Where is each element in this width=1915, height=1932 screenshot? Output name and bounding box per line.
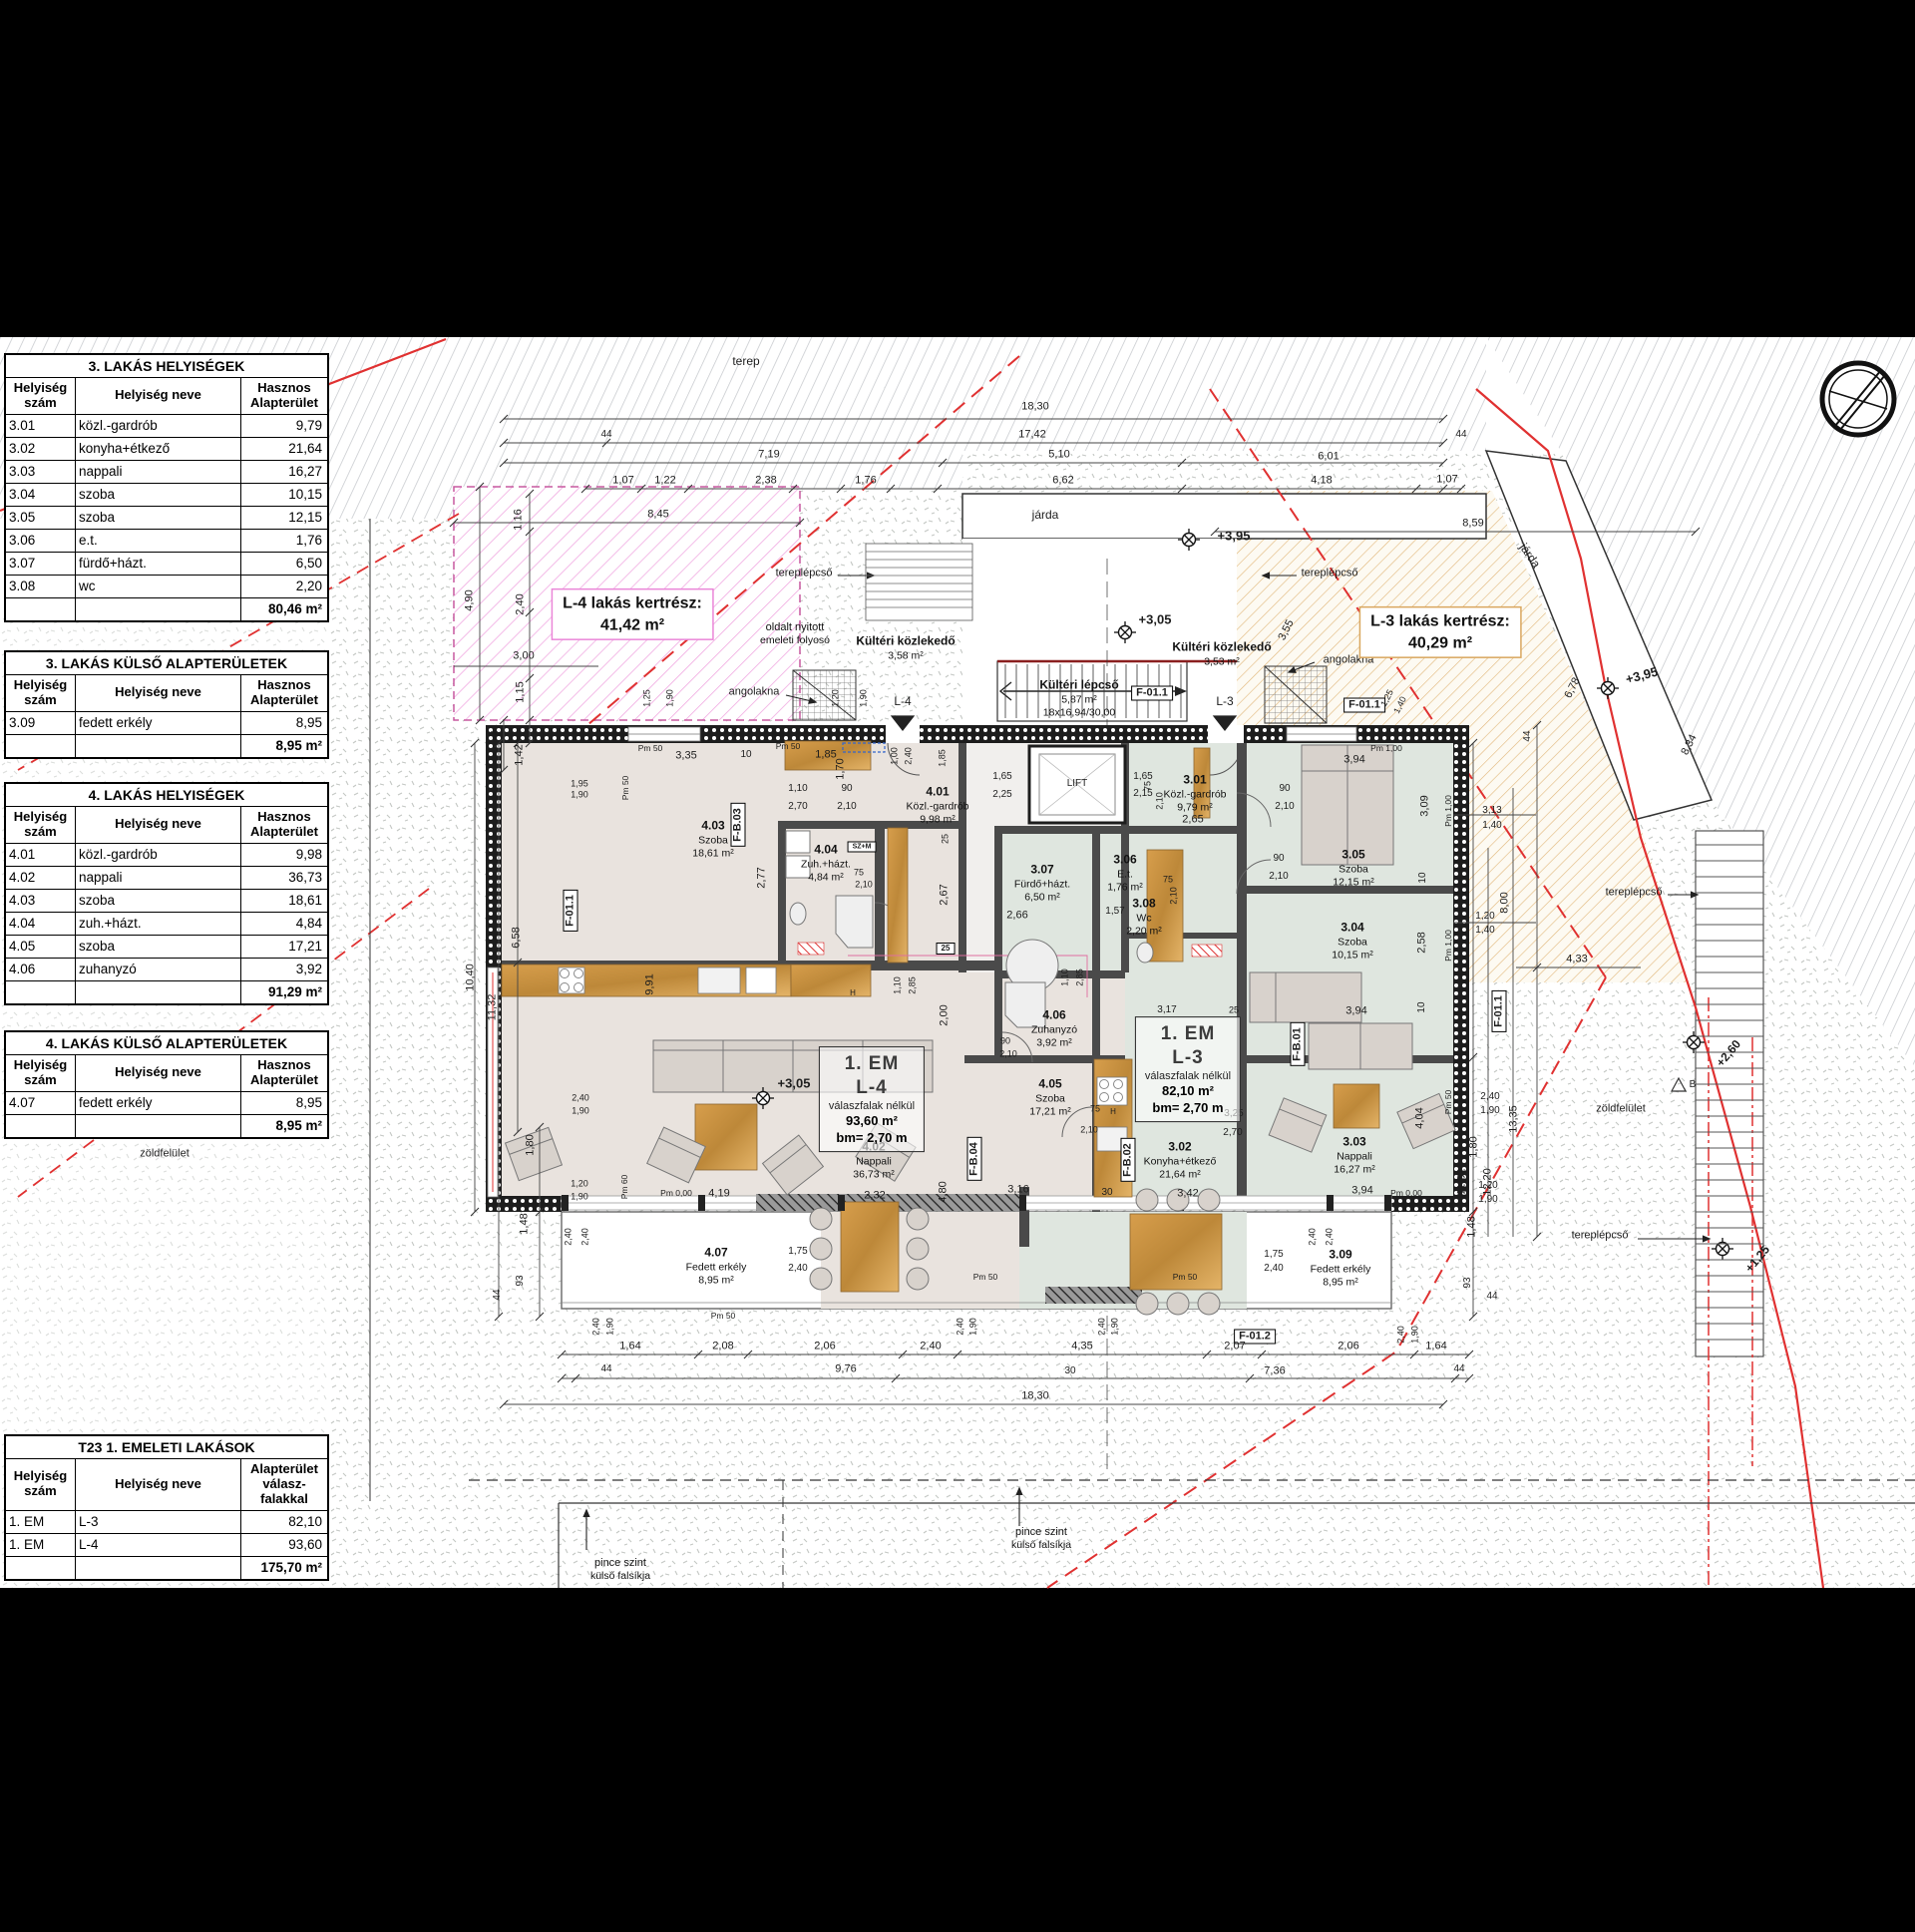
dim-label: Pm 1,00 <box>1444 795 1453 827</box>
dim-label: 2,40 <box>788 1264 807 1274</box>
room-label: 3.05Szoba12,15 m² <box>1333 848 1373 891</box>
table-header-cell: HasznosAlapterület <box>241 378 327 415</box>
room-label: 4.04Zuh.+házt.4,84 m² <box>801 843 851 886</box>
room-label-line: Konyha+étkező <box>1144 1155 1217 1169</box>
dim-label: 4,80 <box>939 1181 950 1202</box>
table-cell: L-3 <box>76 1511 241 1534</box>
room-label-line: 10,15 m² <box>1332 950 1372 964</box>
dim-label: 2,40 <box>1309 1228 1318 1246</box>
table-cell: e.t. <box>76 530 241 553</box>
dim-label: 1,15 <box>516 681 527 702</box>
area-table-4: T23 1. EMELETI LAKÁSOKHelyiségszámHelyis… <box>4 1434 329 1581</box>
table-cell: fedett erkély <box>76 1092 241 1115</box>
dim-label: 9,76 <box>835 1364 856 1375</box>
room-label-line: Kültéri közlekedő <box>856 633 955 649</box>
dim-label: Pm 50 <box>1173 1273 1198 1282</box>
dim-label: 2,85 <box>1076 968 1085 986</box>
table-header-cell: Helyiség neve <box>76 1459 241 1511</box>
table-cell: fedett erkély <box>76 712 241 735</box>
dim-label: 3,94 <box>1345 1006 1366 1017</box>
dim-label: 4,33 <box>1566 955 1587 966</box>
table-title: 4. LAKÁS KÜLSŐ ALAPTERÜLETEK <box>6 1032 327 1055</box>
dim-label: 2,38 <box>755 476 776 487</box>
dim-label: 1,22 <box>654 476 675 487</box>
dim-label: 7,36 <box>1264 1366 1285 1377</box>
room-label-line: 6,50 m² <box>1014 892 1070 906</box>
room-label-line: 16,27 m² <box>1334 1164 1374 1178</box>
dim-label: 2,06 <box>1338 1342 1358 1352</box>
dim-label: 7,19 <box>758 450 779 461</box>
room-label-line: Szoba <box>1029 1092 1070 1106</box>
dim-label: 2,85 <box>909 976 918 994</box>
dim-label: 30 <box>1064 1366 1075 1376</box>
dim-label: Pm 60 <box>620 1175 629 1200</box>
table-row: 3.09fedett erkély8,95 <box>6 712 327 735</box>
dim-label: 3,16 <box>1007 1185 1028 1196</box>
dim-label: 44 <box>1523 730 1533 741</box>
dim-label: 11,32 <box>488 994 499 1021</box>
dim-label: 1,90 <box>572 1107 589 1116</box>
dim-label: 1,85 <box>939 749 948 767</box>
dim-label: 1,76 <box>855 476 876 487</box>
dim-label: 11,32 <box>1457 1169 1468 1196</box>
dim-label: Pm 50 <box>973 1273 998 1282</box>
dim-label: 2,66 <box>1006 911 1027 922</box>
dim-label: 75 <box>1090 1105 1100 1114</box>
table-header-cell: HasznosAlapterület <box>241 675 327 712</box>
building <box>486 725 1469 1309</box>
dim-label: 1,90 <box>1480 1106 1499 1116</box>
table-cell: 82,10 <box>241 1511 327 1534</box>
table-cell <box>76 981 241 1003</box>
table-cell: 17,21 <box>241 936 327 959</box>
dim-label: 10,40 <box>466 964 477 991</box>
area-table-2: 4. LAKÁS HELYISÉGEKHelyiségszámHelyiség … <box>4 782 329 1005</box>
table-row: 4.03szoba18,61 <box>6 890 327 913</box>
room-label-line: 4.05 <box>1029 1077 1070 1093</box>
dim-label: 93 <box>1463 1277 1473 1288</box>
dim-label: 44 <box>600 430 611 440</box>
dim-label: 1,07 <box>612 476 633 487</box>
dim-label: Pm 50 <box>638 744 663 753</box>
dim-label: 3,00 <box>513 651 534 662</box>
table-cell: 93,60 <box>241 1534 327 1557</box>
room-label: 4.05Szoba17,21 m² <box>1029 1077 1070 1120</box>
table-cell: 3.01 <box>6 415 76 438</box>
table-cell: 8,95 m² <box>241 735 327 757</box>
dim-label: 1,80 <box>1469 1136 1480 1157</box>
room-label-line: 21,64 m² <box>1144 1169 1217 1183</box>
reference-tag: 25 <box>937 943 956 955</box>
table-total-row: 91,29 m² <box>6 981 327 1003</box>
table-cell: 91,29 m² <box>241 981 327 1003</box>
room-label-line: Zuh.+házt. <box>801 858 851 872</box>
room-label-line: 1,76 m² <box>1107 882 1143 896</box>
dim-label: 4,35 <box>1071 1342 1092 1352</box>
room-label: pince szintkülső falsíkja <box>590 1556 650 1584</box>
table-total-row: 8,95 m² <box>6 735 327 757</box>
table-row: 4.04zuh.+házt.4,84 <box>6 913 327 936</box>
dim-label: 2,40 <box>592 1318 601 1336</box>
dim-label: 10 <box>740 750 751 760</box>
unit-summary-box: 1. EML-4válaszfalak nélkül93,60 m²bm= 2,… <box>819 1046 925 1152</box>
table-cell: közl.-gardrób <box>76 415 241 438</box>
room-label: 4.01Közl.-gardrób9,98 m² <box>906 785 968 828</box>
table-total-row: 80,46 m² <box>6 598 327 620</box>
dim-label: járda <box>1032 509 1059 521</box>
dim-label: 1,90 <box>606 1318 615 1336</box>
room-label-line: 18x16,94/30,00 <box>1039 707 1118 721</box>
dim-label: angolakna <box>729 687 780 698</box>
table-title: T23 1. EMELETI LAKÁSOK <box>6 1436 327 1459</box>
dim-label: 4,18 <box>1311 476 1332 487</box>
dim-label: 2,10 <box>1080 1126 1098 1135</box>
dim-label: 2,10 <box>837 802 856 812</box>
dim-label: 3,17 <box>1157 1005 1176 1015</box>
dim-label: 2,10 <box>1269 872 1288 882</box>
dim-label: 44 <box>1455 430 1466 440</box>
table-header-cell: Helyiségszám <box>6 1459 76 1511</box>
table-title: 4. LAKÁS HELYISÉGEK <box>6 784 327 807</box>
dim-label: 90 <box>1279 784 1290 794</box>
table-row: 3.08wc2,20 <box>6 576 327 598</box>
room-label-line: 3.08 <box>1126 897 1162 913</box>
dim-label: 2,77 <box>757 867 768 888</box>
room-label-line: Nappali <box>853 1155 894 1169</box>
room-label-line: Wc <box>1126 912 1162 926</box>
table-cell <box>6 598 76 620</box>
table-cell: szoba <box>76 890 241 913</box>
room-label-line: 3.03 <box>1334 1135 1374 1151</box>
table-cell: 3.04 <box>6 484 76 507</box>
dim-label: 2,67 <box>940 884 951 905</box>
table-cell: szoba <box>76 507 241 530</box>
dim-label: 2,40 <box>516 593 527 614</box>
dim-label: 1,75 <box>1264 1250 1283 1260</box>
table-row: 3.06e.t.1,76 <box>6 530 327 553</box>
room-label: 4.06Zuhanyzó3,92 m² <box>1031 1008 1077 1051</box>
dim-label: 93 <box>516 1275 526 1286</box>
table-header-cell: Alapterületválasz-falakkal <box>241 1459 327 1511</box>
room-label-line: 3.09 <box>1311 1248 1371 1264</box>
table-header-cell: Helyiség neve <box>76 1055 241 1092</box>
room-label-line: 3,53 m² <box>1172 655 1271 669</box>
table-cell <box>76 1115 241 1137</box>
dim-label: 8,45 <box>647 510 668 521</box>
room-label-line: emeleti folyosó <box>760 634 830 648</box>
table-header-cell: HasznosAlapterület <box>241 807 327 844</box>
table-cell: 175,70 m² <box>241 1557 327 1579</box>
room-label-line: 4.07 <box>686 1246 747 1262</box>
dim-label: +3,95 <box>1218 530 1251 543</box>
dim-label: 44 <box>1486 1292 1497 1302</box>
room-label: 3.09Fedett erkély8,95 m² <box>1311 1248 1371 1291</box>
table-cell: 16,27 <box>241 461 327 484</box>
dim-label: 18,30 <box>1021 1391 1049 1402</box>
dim-label: H <box>850 989 856 997</box>
dim-label: 5,10 <box>1048 450 1069 461</box>
room-label-line: Fedett erkély <box>1311 1263 1371 1277</box>
unit-summary-box: 1. EML-3válaszfalak nélkül82,10 m²bm= 2,… <box>1135 1016 1241 1122</box>
table-cell: L-4 <box>76 1534 241 1557</box>
dim-label: Pm 50 <box>776 742 801 751</box>
dim-label: 75 <box>1144 781 1153 791</box>
table-cell: 3.05 <box>6 507 76 530</box>
dim-label: 2,10 <box>1275 802 1294 812</box>
dim-label: Pm 1,00 <box>1370 744 1402 753</box>
table-row: 4.05szoba17,21 <box>6 936 327 959</box>
reference-tag: F-B.02 <box>1121 1138 1136 1182</box>
dim-label: 2,40 <box>905 747 914 765</box>
room-label: 3.03Nappali16,27 m² <box>1334 1135 1374 1178</box>
room-label-line: Szoba <box>1332 936 1372 950</box>
area-table-1: 3. LAKÁS KÜLSŐ ALAPTERÜLETEKHelyiségszám… <box>4 650 329 759</box>
table-cell: 4.01 <box>6 844 76 867</box>
dim-label: 44 <box>600 1364 611 1374</box>
dim-label: Pm 0,00 <box>660 1189 692 1198</box>
table-cell: 4.03 <box>6 890 76 913</box>
table-cell: 3.08 <box>6 576 76 598</box>
dim-label: 2,25 <box>992 790 1011 800</box>
table-row: 1. EML-493,60 <box>6 1534 327 1557</box>
table-cell: 4,84 <box>241 913 327 936</box>
dim-label: 1,90 <box>571 1193 588 1202</box>
dim-label: 1,10 <box>788 784 807 794</box>
dim-label: tereplépcső <box>776 569 833 580</box>
dim-label: 2,40 <box>1098 1318 1107 1336</box>
table-cell: nappali <box>76 461 241 484</box>
dim-label: 10 <box>1418 872 1428 883</box>
table-row: 3.01közl.-gardrób9,79 <box>6 415 327 438</box>
room-label-line: 3.02 <box>1144 1140 1217 1156</box>
table-cell: 3.02 <box>6 438 76 461</box>
dim-label: 3,94 <box>1343 755 1364 766</box>
table-cell <box>76 1557 241 1579</box>
dim-label: L-4 <box>894 695 911 707</box>
dim-label: tereplépcső <box>1606 888 1663 899</box>
dim-label: B <box>1690 1080 1697 1090</box>
room-label-line: 3.04 <box>1332 921 1372 937</box>
table-header-cell: HasznosAlapterület <box>241 1055 327 1092</box>
dim-label: Pm 0,00 <box>1390 1189 1422 1198</box>
dim-label: tereplépcső <box>1572 1231 1629 1242</box>
room-label-line: 8,95 m² <box>686 1275 747 1289</box>
table-cell: 36,73 <box>241 867 327 890</box>
dim-label: 4,19 <box>708 1189 729 1200</box>
table-header-cell: Helyiség neve <box>76 675 241 712</box>
dim-label: 2,58 <box>1417 932 1428 953</box>
dim-label: 1,16 <box>514 509 525 530</box>
room-label-line: 5,87 m² <box>1039 693 1118 707</box>
dim-label: 2,65 <box>1182 815 1203 826</box>
table-row: 4.01közl.-gardrób9,98 <box>6 844 327 867</box>
room-label: 4.03Szoba18,61 m² <box>692 819 733 862</box>
terrain-stair-right <box>1696 831 1763 1356</box>
dim-label: 1,90 <box>571 791 588 800</box>
dim-label: 1,20 <box>1478 1181 1497 1191</box>
dim-label: 2,70 <box>1223 1128 1242 1138</box>
dim-label: 4,90 <box>465 589 476 610</box>
room-label: Kültéri közlekedő3,53 m² <box>1172 639 1271 668</box>
dim-label: 1,64 <box>1425 1342 1446 1352</box>
table-cell: 8,95 <box>241 712 327 735</box>
room-label: 3.08Wc2,20 m² <box>1126 897 1162 940</box>
dim-label: 2,40 <box>572 1094 589 1103</box>
table-cell: zuh.+házt. <box>76 913 241 936</box>
dim-label: 6,62 <box>1052 476 1073 487</box>
table-cell: 6,50 <box>241 553 327 576</box>
dim-label: 8,59 <box>1462 519 1483 530</box>
table-cell <box>6 1115 76 1137</box>
dim-label: 2,10 <box>1170 887 1179 905</box>
dim-label: 25 <box>942 834 951 844</box>
room-label: Kültéri közlekedő3,58 m² <box>856 633 955 662</box>
room-label-line: 4.04 <box>801 843 851 859</box>
dim-label: 90 <box>841 784 852 794</box>
dim-label: 2,40 <box>581 1228 590 1246</box>
dim-label: 2,07 <box>1224 1342 1245 1352</box>
room-label-line: 12,15 m² <box>1333 877 1373 891</box>
dim-label: 1,20 <box>571 1180 588 1189</box>
table-cell: 4.05 <box>6 936 76 959</box>
garden-label: L-3 lakás kertrész:40,29 m² <box>1360 607 1520 656</box>
room-label-line: Fedett erkély <box>686 1261 747 1275</box>
dim-label: 1,85 <box>815 750 836 761</box>
room-label-line: 4.03 <box>692 819 733 835</box>
dim-label: 25 <box>1229 1006 1239 1015</box>
room-label-line: 3.06 <box>1107 853 1143 869</box>
table-total-row: 8,95 m² <box>6 1115 327 1137</box>
room-label: oldalt nyitottemeleti folyosó <box>760 620 830 648</box>
room-label-line: 3,58 m² <box>856 649 955 663</box>
table-cell: 9,98 <box>241 844 327 867</box>
table-cell: 10,15 <box>241 484 327 507</box>
room-label-line: pince szint <box>590 1556 650 1570</box>
architectural-floor-plan-sheet: { "sheet": {"bg": "#ffffff", "letterbox"… <box>0 0 1915 1932</box>
dim-label: 1,64 <box>619 1342 640 1352</box>
dim-label: terep <box>732 355 759 367</box>
dim-label: 2,40 <box>920 1342 941 1352</box>
table-cell: szoba <box>76 484 241 507</box>
dim-label: 6,58 <box>512 927 523 948</box>
dim-label: 3,35 <box>675 751 696 762</box>
table-cell <box>76 598 241 620</box>
dim-label: 8,00 <box>1500 892 1511 913</box>
table-row: 4.02nappali36,73 <box>6 867 327 890</box>
room-label-line: Közl.-gardrób <box>1163 788 1226 802</box>
table-row: 4.06zuhanyzó3,92 <box>6 959 327 981</box>
table-cell <box>6 981 76 1003</box>
table-title: 3. LAKÁS HELYISÉGEK <box>6 355 327 378</box>
table-cell: konyha+étkező <box>76 438 241 461</box>
table-cell: 12,15 <box>241 507 327 530</box>
reference-tag: F-B.04 <box>967 1137 982 1181</box>
dim-label: 2,10 <box>855 881 873 890</box>
table-row: 3.03nappali16,27 <box>6 461 327 484</box>
dim-label: Pm 50 <box>711 1312 736 1321</box>
room-label-line: 3.05 <box>1333 848 1373 864</box>
dim-label: zöldfelület <box>140 1149 190 1160</box>
dim-label: 75 <box>854 869 864 878</box>
room-label-line: Zuhanyzó <box>1031 1023 1077 1037</box>
dim-label: 3,94 <box>1351 1186 1372 1197</box>
table-cell <box>76 735 241 757</box>
dim-label: 2,70 <box>788 802 807 812</box>
dim-label: 1,95 <box>571 780 588 789</box>
room-label-line: pince szint <box>1011 1525 1071 1539</box>
dim-label: LIFT <box>1067 779 1088 789</box>
dim-label: 1,10 <box>894 976 903 994</box>
table-cell: wc <box>76 576 241 598</box>
dim-label: +3,05 <box>1139 613 1172 626</box>
dim-label: 1,75 <box>788 1247 807 1257</box>
table-cell: nappali <box>76 867 241 890</box>
dim-label: 1,90 <box>969 1318 978 1336</box>
table-cell <box>6 1557 76 1579</box>
table-row: 3.05szoba12,15 <box>6 507 327 530</box>
table-cell: 3,92 <box>241 959 327 981</box>
north-arrow-icon <box>1822 363 1894 435</box>
table-cell: 3.03 <box>6 461 76 484</box>
table-row: 1. EML-382,10 <box>6 1511 327 1534</box>
dim-label: 17,42 <box>1018 430 1046 441</box>
room-label-line: Nappali <box>1334 1150 1374 1164</box>
dim-label: 1,90 <box>1478 1195 1497 1205</box>
room-label-line: külső falsíkja <box>590 1570 650 1584</box>
table-cell: 1. EM <box>6 1534 76 1557</box>
room-label-line: 4,84 m² <box>801 872 851 886</box>
room-label: pince szintkülső falsíkja <box>1011 1525 1071 1553</box>
room-label-line: Kültéri lépcső <box>1039 678 1118 694</box>
room-label: Kültéri lépcső5,87 m²18x16,94/30,00 <box>1039 678 1118 721</box>
dim-label: 2,08 <box>712 1342 733 1352</box>
dim-label: 44 <box>1453 1364 1464 1374</box>
table-cell: 21,64 <box>241 438 327 461</box>
dim-label: 1,90 <box>1111 1318 1120 1336</box>
table-row: 3.02konyha+étkező21,64 <box>6 438 327 461</box>
dim-label: 1,70 <box>836 758 847 779</box>
table-cell: 1. EM <box>6 1511 76 1534</box>
table-header-cell: Helyiség neve <box>76 378 241 415</box>
table-cell: 4.07 <box>6 1092 76 1115</box>
garden-label: L-4 lakás kertrész:41,42 m² <box>553 589 712 638</box>
dim-label: 6,01 <box>1318 452 1339 463</box>
room-label-line: 2,20 m² <box>1126 926 1162 940</box>
dim-label: 1,80 <box>526 1134 537 1155</box>
dim-label: 2,40 <box>957 1318 965 1336</box>
reference-tag: F-01.1 <box>1131 686 1173 701</box>
dim-label: 1,00 <box>891 747 900 765</box>
table-cell <box>6 735 76 757</box>
dim-label: 90 <box>1273 854 1284 864</box>
dim-label: tereplépcső <box>1302 569 1358 580</box>
dim-label: 2,40 <box>565 1228 574 1246</box>
dim-label: 2,40 <box>1326 1228 1335 1246</box>
dim-label: 13,35 <box>1509 1105 1520 1133</box>
dim-label: zöldfelület <box>1596 1104 1646 1115</box>
reference-tag: SZ+M <box>848 842 877 853</box>
dim-label: 1,07 <box>1436 475 1457 486</box>
room-label: 3.02Konyha+étkező21,64 m² <box>1144 1140 1217 1183</box>
dim-label: 2,40 <box>1264 1264 1283 1274</box>
reference-tag: F-B.01 <box>1291 1022 1306 1066</box>
dim-label: +3,05 <box>778 1077 811 1090</box>
dim-label: 2,06 <box>814 1342 835 1352</box>
room-label-line: 9,98 m² <box>906 814 968 828</box>
area-table-3: 4. LAKÁS KÜLSŐ ALAPTERÜLETEKHelyiségszám… <box>4 1030 329 1139</box>
room-label-line: Kültéri közlekedő <box>1172 639 1271 655</box>
dim-label: 2,10 <box>999 1050 1017 1059</box>
